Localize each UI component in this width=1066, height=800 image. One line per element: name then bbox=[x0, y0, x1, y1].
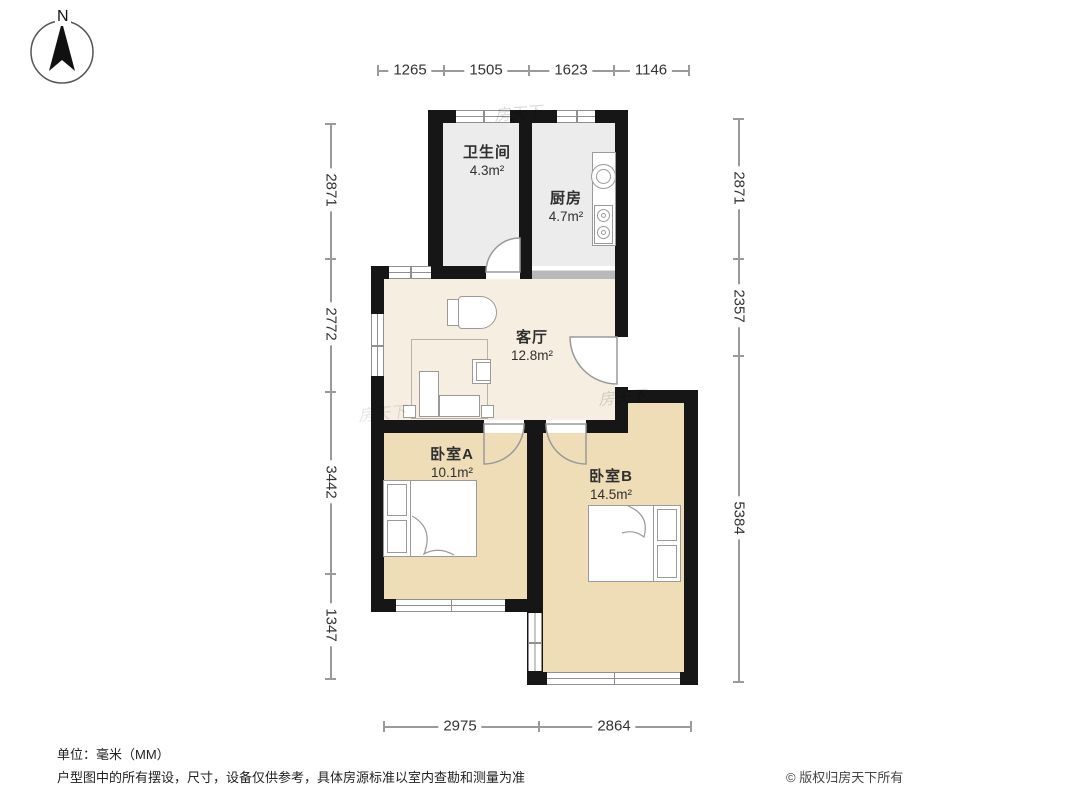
dim-right-2: 2357 bbox=[731, 284, 748, 327]
bedroom-a-door bbox=[482, 422, 528, 468]
bedroom-b-window bbox=[547, 672, 680, 685]
bed-b-pillow-bottom bbox=[657, 545, 677, 578]
side-table-top bbox=[476, 362, 491, 381]
bedroom-b-name: 卧室B bbox=[589, 468, 633, 487]
kitchen-window bbox=[557, 110, 595, 123]
living-room-name: 客厅 bbox=[511, 329, 553, 348]
kitchen-pass-opening bbox=[532, 266, 615, 279]
watermark-text: 房天下 bbox=[357, 398, 407, 426]
kitchen-area: 4.7m² bbox=[549, 209, 584, 226]
bathroom-area: 4.3m² bbox=[463, 163, 511, 180]
compass: N bbox=[24, 14, 104, 94]
dim-top-3: 1623 bbox=[549, 62, 592, 79]
living-room-area: 12.8m² bbox=[511, 348, 553, 365]
bed-a-blanket-fold bbox=[408, 512, 456, 558]
wall-bedroom-divider bbox=[527, 420, 543, 612]
dim-right-1: 2871 bbox=[731, 166, 748, 209]
bedroom-b-door bbox=[544, 422, 590, 468]
dim-top-1: 1265 bbox=[388, 62, 431, 79]
wall-topblock-left bbox=[428, 110, 443, 277]
dim-bottom-2: 2864 bbox=[592, 718, 635, 735]
sofa-seat bbox=[439, 395, 480, 417]
dim-top-4: 1146 bbox=[630, 62, 672, 79]
dim-left-1: 2871 bbox=[323, 168, 340, 211]
disclaimer: 户型图中的所有摆设，尺寸，设备仅供参考，具体房源标准以室内查勘和测量为准 bbox=[57, 767, 525, 786]
compass-north-label: N bbox=[55, 8, 71, 26]
living-top-window bbox=[389, 266, 431, 279]
dim-bottom-1: 2975 bbox=[438, 718, 481, 735]
living-room-label: 客厅 12.8m² bbox=[511, 329, 553, 365]
stove-burner-bottom-dot bbox=[601, 230, 606, 235]
living-left-window bbox=[371, 314, 384, 376]
dim-left-2: 2772 bbox=[323, 302, 340, 345]
bathroom-door bbox=[484, 236, 524, 276]
dim-top-2: 1505 bbox=[464, 62, 507, 79]
bedroom-a-label: 卧室A 10.1m² bbox=[430, 446, 474, 482]
bedroom-a-name: 卧室A bbox=[430, 446, 474, 465]
bedroom-b-label: 卧室B 14.5m² bbox=[589, 468, 633, 504]
bathroom-label: 卫生间 4.3m² bbox=[463, 144, 511, 180]
bathroom-name: 卫生间 bbox=[463, 144, 511, 163]
toilet-bowl-icon bbox=[458, 296, 497, 329]
bedroom-a-area: 10.1m² bbox=[430, 465, 474, 482]
floorplan-page: N 1265 1505 1623 1146 2871 2772 3442 134… bbox=[0, 0, 1066, 800]
entry-door bbox=[568, 335, 620, 387]
bed-a-pillow-bottom bbox=[387, 520, 407, 553]
bed-a-pillow-top bbox=[387, 484, 407, 516]
watermark-text: 房天下 bbox=[493, 98, 543, 126]
dim-left-4: 1347 bbox=[323, 603, 340, 646]
bed-b-blanket-fold bbox=[618, 505, 662, 541]
copyright: © 版权归房天下所有 bbox=[786, 767, 903, 786]
compass-icon bbox=[24, 14, 104, 94]
sink-basin-icon bbox=[596, 169, 611, 184]
wall-bedroom-b-right bbox=[684, 390, 698, 685]
watermark-text: 房天下 bbox=[597, 382, 647, 410]
bedroom-b-left-window bbox=[528, 613, 542, 671]
sofa-chaise bbox=[419, 371, 439, 417]
unit-note: 单位：毫米（MM） bbox=[57, 744, 170, 763]
dim-left-3: 3442 bbox=[323, 460, 340, 503]
dim-right-3: 5384 bbox=[731, 496, 748, 539]
kitchen-label: 厨房 4.7m² bbox=[549, 190, 584, 226]
bedroom-a-window bbox=[396, 599, 505, 612]
stove-burner-top-dot bbox=[601, 213, 606, 218]
sofa-armrest-right bbox=[481, 405, 494, 418]
kitchen-name: 厨房 bbox=[549, 190, 584, 209]
bedroom-b-area: 14.5m² bbox=[589, 487, 633, 504]
